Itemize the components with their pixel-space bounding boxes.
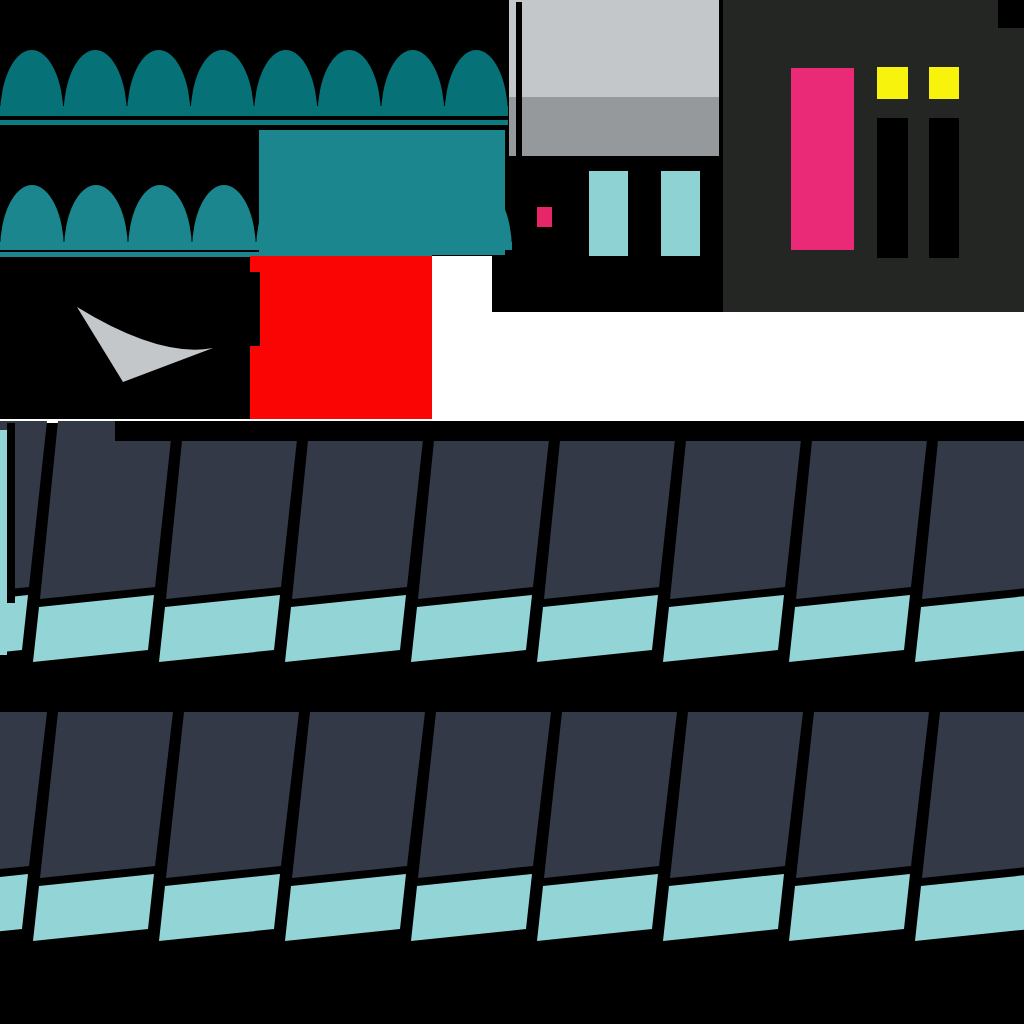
left-edge-black-trim (7, 423, 15, 603)
shingle-band-top-dark-tile (292, 421, 425, 599)
facade-window-left (589, 171, 628, 256)
red-block (250, 256, 432, 419)
shingle-band-bottom-dark-tile (40, 712, 173, 878)
shingle-band-bottom-dark-tile (544, 712, 677, 878)
sprite-sheet-stage (0, 0, 1024, 1024)
door-lamp-left (877, 67, 908, 99)
door-slit-left (877, 118, 908, 258)
shingle-band-bottom-dark-tile (796, 712, 929, 878)
facade-small-pink-light (537, 207, 552, 227)
teal-canopy (259, 130, 505, 255)
awning-large-underline (0, 120, 508, 125)
shingle-band-top-dark-tile (166, 421, 299, 599)
shingle-band-top-dark-tile (544, 421, 677, 599)
door-lamp-right (929, 67, 959, 99)
door-panel (723, 0, 1024, 312)
shingle-top-black-bar (115, 421, 1024, 441)
facade-window-right (661, 171, 700, 256)
shingle-band-top-dark-tile (670, 421, 803, 599)
texture-atlas-canvas (0, 0, 1024, 1024)
shingle-band-top-dark-tile (418, 421, 551, 599)
storefront-wall-right-gap (719, 0, 723, 156)
shingle-band-bottom-dark-tile (418, 712, 551, 878)
shingle-band-bottom-dark-tile (292, 712, 425, 878)
shingle-band-bottom-dark-tile (670, 712, 803, 878)
storefront-wall-seam (516, 2, 522, 156)
left-edge-cyan-trim (0, 430, 7, 655)
storefront-wall-upper (509, 0, 719, 97)
shingle-band-top-dark-tile (40, 421, 173, 599)
red-block-notch (249, 272, 260, 346)
door-pink-slab (791, 68, 854, 250)
door-panel-corner-notch (998, 0, 1024, 28)
door-slit-right (929, 118, 959, 258)
storefront-wall-lower (509, 97, 719, 156)
shingle-band-bottom-dark-tile (166, 712, 299, 878)
shingle-band-top-dark-tile (796, 421, 929, 599)
